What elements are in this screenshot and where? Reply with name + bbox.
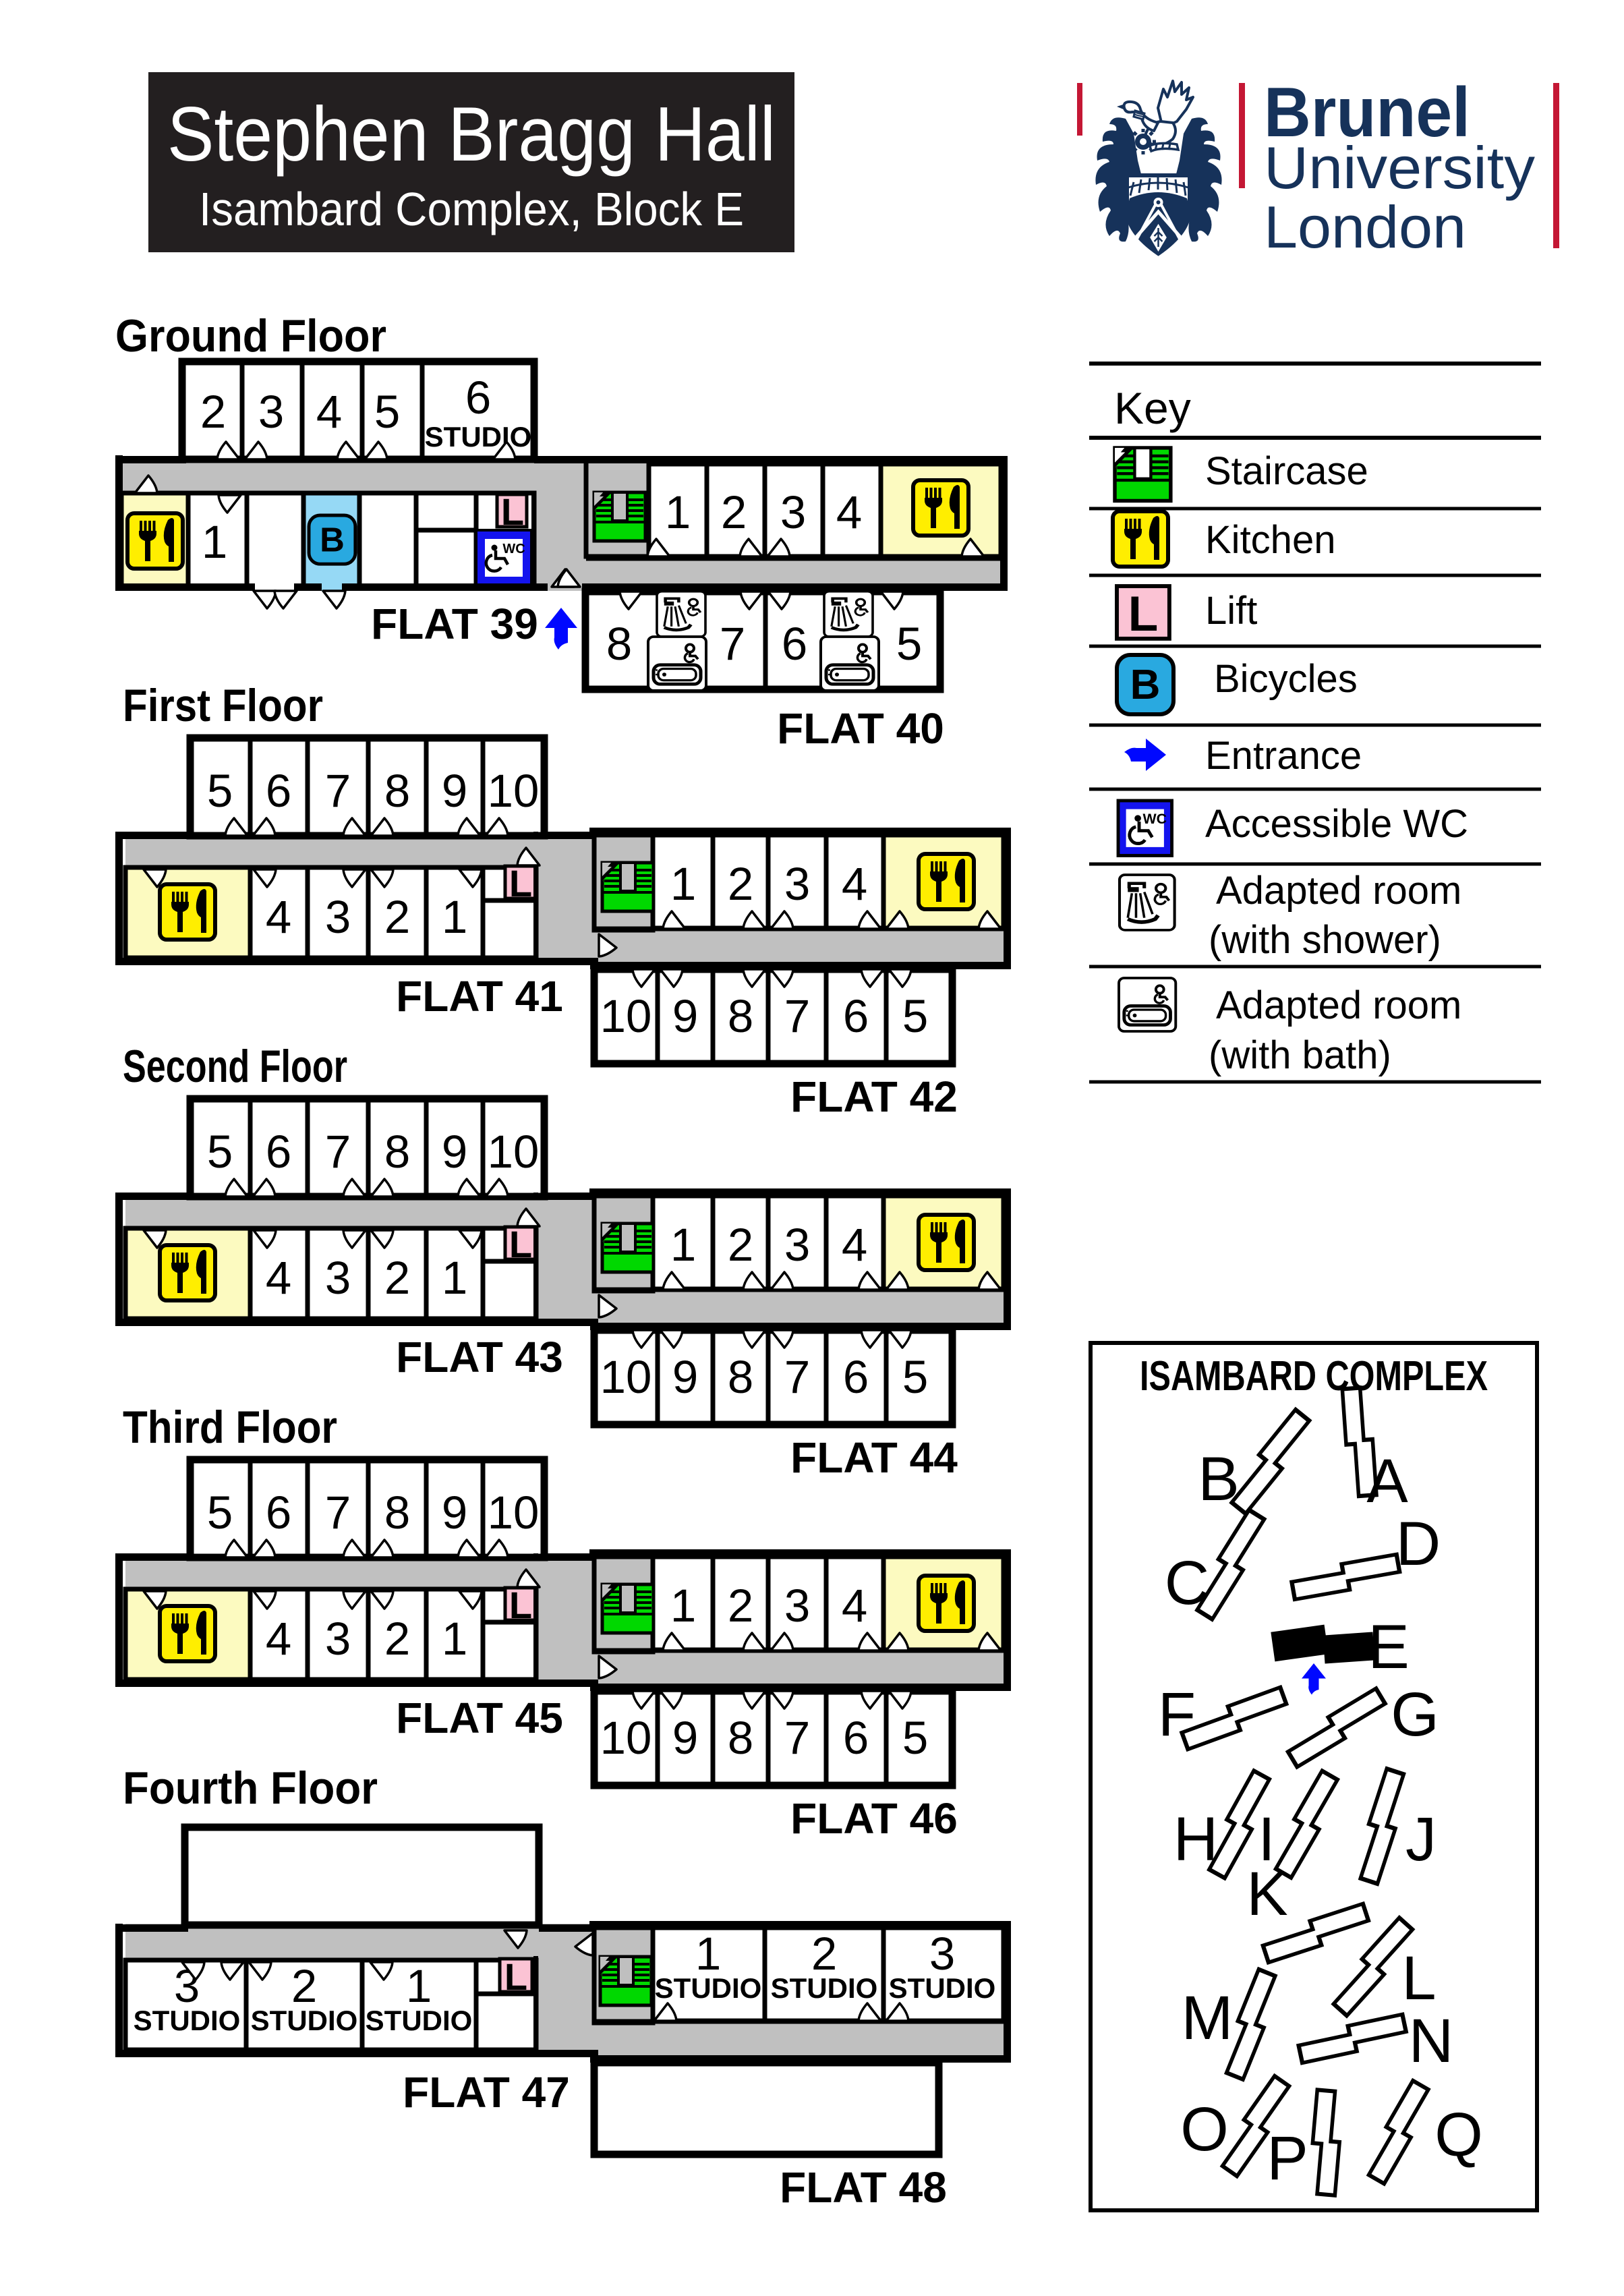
svg-text:FLAT 46: FLAT 46 [790, 1794, 958, 1843]
svg-text:Key: Key [1114, 383, 1191, 433]
svg-text:2: 2 [721, 486, 747, 538]
svg-text:F: F [1158, 1680, 1196, 1749]
svg-text:O: O [1180, 2095, 1229, 2164]
svg-text:7: 7 [325, 765, 351, 817]
svg-text:M: M [1182, 1984, 1234, 2053]
svg-text:FLAT 41: FLAT 41 [396, 972, 563, 1021]
svg-text:D: D [1396, 1510, 1441, 1578]
svg-text:1: 1 [665, 486, 691, 538]
svg-text:10: 10 [600, 990, 652, 1042]
svg-text:STUDIO: STUDIO [134, 2005, 241, 2036]
svg-text:3: 3 [258, 386, 284, 438]
svg-text:Second Floor: Second Floor [123, 1041, 347, 1092]
svg-text:FLAT 43: FLAT 43 [396, 1333, 563, 1381]
svg-text:2: 2 [384, 891, 410, 943]
svg-text:Isambard Complex, Block E: Isambard Complex, Block E [199, 183, 744, 235]
svg-text:FLAT 47: FLAT 47 [403, 2068, 570, 2117]
svg-text:STUDIO: STUDIO [425, 421, 532, 453]
svg-text:STUDIO: STUDIO [771, 1972, 878, 2004]
svg-text:1: 1 [670, 858, 696, 910]
svg-text:5: 5 [902, 990, 928, 1042]
svg-text:6: 6 [782, 618, 807, 670]
svg-text:Fourth Floor: Fourth Floor [123, 1762, 378, 1814]
svg-text:FLAT 42: FLAT 42 [790, 1072, 958, 1121]
svg-text:Bicycles: Bicycles [1214, 657, 1358, 701]
svg-text:(with bath): (with bath) [1209, 1033, 1391, 1077]
svg-text:3: 3 [780, 486, 806, 538]
svg-text:5: 5 [374, 386, 400, 438]
svg-text:7: 7 [720, 618, 745, 670]
svg-text:(with shower): (with shower) [1209, 918, 1441, 962]
svg-text:4: 4 [842, 858, 867, 910]
svg-text:5: 5 [207, 765, 233, 817]
svg-text:9: 9 [442, 765, 467, 817]
svg-text:Staircase: Staircase [1205, 449, 1368, 493]
svg-text:1: 1 [442, 891, 467, 943]
svg-text:Lift: Lift [1205, 589, 1257, 633]
svg-text:STUDIO: STUDIO [251, 2005, 358, 2036]
svg-text:8: 8 [384, 765, 410, 817]
svg-text:FLAT 44: FLAT 44 [790, 1433, 958, 1482]
svg-text:C: C [1165, 1549, 1209, 1617]
svg-text:H: H [1173, 1805, 1218, 1874]
svg-text:9: 9 [672, 990, 698, 1042]
svg-text:8: 8 [606, 618, 632, 670]
svg-text:5: 5 [896, 618, 922, 670]
svg-text:7: 7 [784, 990, 810, 1042]
svg-text:WC: WC [502, 542, 525, 556]
svg-text:Kitchen: Kitchen [1205, 518, 1335, 562]
svg-text:6: 6 [843, 990, 869, 1042]
svg-text:N: N [1409, 2007, 1453, 2075]
svg-text:Third Floor: Third Floor [123, 1402, 337, 1453]
svg-text:6: 6 [465, 372, 491, 424]
svg-text:FLAT 39: FLAT 39 [371, 600, 538, 648]
svg-text:FLAT 48: FLAT 48 [780, 2163, 947, 2212]
svg-text:3: 3 [325, 891, 351, 943]
svg-text:Entrance: Entrance [1205, 734, 1362, 778]
svg-text:E: E [1368, 1613, 1409, 1682]
svg-text:FLAT 40: FLAT 40 [777, 704, 944, 753]
svg-text:G: G [1391, 1680, 1439, 1749]
svg-text:Stephen Bragg Hall: Stephen Bragg Hall [167, 92, 776, 177]
svg-text:3: 3 [784, 858, 810, 910]
svg-text:P: P [1267, 2124, 1308, 2193]
svg-text:STUDIO: STUDIO [889, 1972, 996, 2004]
svg-text:FLAT 45: FLAT 45 [396, 1694, 563, 1742]
svg-text:J: J [1405, 1805, 1437, 1874]
svg-text:4: 4 [836, 486, 862, 538]
svg-text:L: L [1401, 1944, 1436, 2013]
svg-text:ISAMBARD COMPLEX: ISAMBARD COMPLEX [1140, 1353, 1488, 1400]
svg-text:STUDIO: STUDIO [655, 1972, 762, 2004]
svg-text:2: 2 [728, 858, 753, 910]
svg-text:Adapted room: Adapted room [1216, 983, 1461, 1027]
svg-text:Accessible WC: Accessible WC [1205, 802, 1468, 846]
svg-text:K: K [1246, 1860, 1287, 1928]
svg-text:4: 4 [266, 891, 291, 943]
svg-text:B: B [1198, 1445, 1239, 1514]
svg-text:L: L [501, 490, 524, 533]
svg-text:4: 4 [316, 386, 342, 438]
svg-text:A: A [1366, 1447, 1408, 1516]
svg-text:Q: Q [1434, 2100, 1483, 2169]
svg-text:2: 2 [200, 386, 226, 438]
svg-text:London: London [1264, 194, 1466, 260]
svg-text:1: 1 [202, 516, 227, 568]
svg-text:University: University [1264, 134, 1535, 201]
svg-text:6: 6 [266, 765, 291, 817]
svg-text:First Floor: First Floor [123, 680, 323, 731]
svg-text:STUDIO: STUDIO [366, 2005, 473, 2036]
svg-text:Adapted room: Adapted room [1216, 869, 1461, 913]
svg-text:Ground Floor: Ground Floor [115, 310, 386, 362]
svg-text:10: 10 [488, 765, 540, 817]
svg-text:8: 8 [728, 990, 753, 1042]
